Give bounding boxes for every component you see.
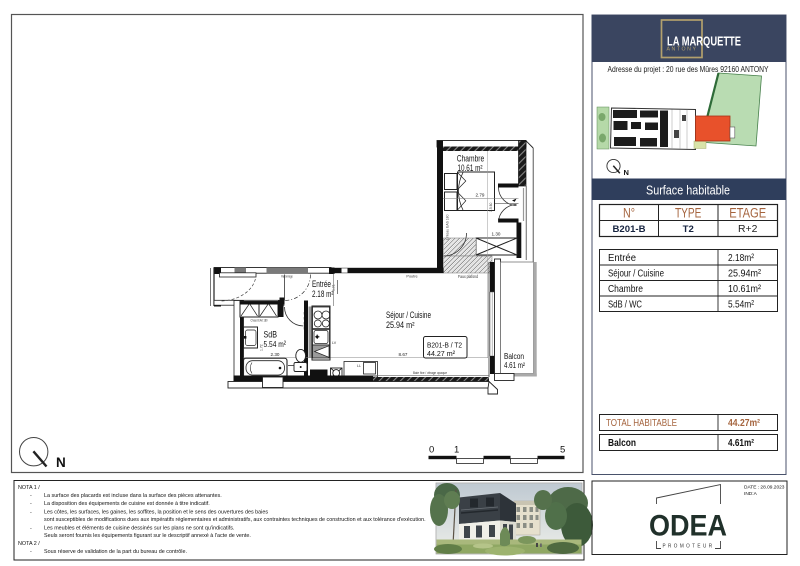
svg-text:0: 0 (429, 445, 434, 456)
svg-text:-: - (30, 549, 32, 555)
svg-text:-: - (30, 510, 32, 516)
svg-text:DATE : 28.09.2023: DATE : 28.09.2023 (744, 485, 785, 491)
svg-text:PROMOTEUR: PROMOTEUR (663, 544, 715, 550)
svg-text:Adresse du projet : 20 rue des: Adresse du projet : 20 rue des Mûres 921… (608, 65, 769, 74)
svg-text:Sous réserve de validation de: Sous réserve de validation de la part du… (44, 549, 187, 555)
svg-text:Chaud EA0 180: Chaud EA0 180 (251, 319, 268, 323)
svg-text:NOTA 2 /: NOTA 2 / (18, 541, 40, 547)
svg-text:Seuls seront fournis les équip: Seuls seront fournis les équipements fig… (44, 533, 251, 539)
svg-text:-: - (30, 501, 32, 507)
svg-text:Faux plafond: Faux plafond (458, 274, 479, 279)
svg-text:N: N (56, 455, 66, 470)
svg-text:Entrée: Entrée (608, 253, 636, 264)
svg-text:5.54 m²: 5.54 m² (264, 339, 287, 349)
svg-text:10.61 m²: 10.61 m² (458, 163, 483, 173)
svg-text:N°: N° (623, 205, 635, 220)
svg-text:Balcon: Balcon (608, 438, 636, 449)
svg-text:SdB: SdB (264, 330, 278, 340)
svg-text:Rayonnage: Rayonnage (281, 275, 293, 279)
svg-text:TOTAL HABITABLE: TOTAL HABITABLE (606, 418, 677, 429)
svg-text:T2: T2 (683, 224, 694, 235)
svg-text:LL: LL (357, 364, 361, 368)
svg-text:1.5 80: 1.5 80 (489, 202, 493, 212)
svg-text:8.67: 8.67 (399, 352, 408, 357)
svg-text:R+2: R+2 (738, 224, 758, 235)
svg-text:Séjour / Cuisine: Séjour / Cuisine (386, 310, 431, 320)
svg-text:5.54m²: 5.54m² (728, 300, 754, 311)
svg-text:La surface des placards est in: La surface des placards est incluse dans… (44, 493, 222, 499)
svg-text:25.94 m²: 25.94 m² (386, 320, 415, 330)
svg-text:1: 1 (454, 445, 459, 456)
svg-text:SdB / WC: SdB / WC (608, 300, 642, 311)
svg-text:Baie fixe / vitrage opaque: Baie fixe / vitrage opaque (413, 371, 447, 375)
svg-text:-: - (30, 493, 32, 499)
svg-text:Les côtes, les surfaces, les g: Les côtes, les surfaces, les gaines, les… (44, 510, 268, 516)
svg-text:N: N (624, 168, 629, 177)
svg-text:2.79: 2.79 (476, 193, 485, 198)
svg-text:-: - (30, 526, 32, 532)
svg-text:B201-B: B201-B (613, 224, 646, 235)
svg-text:2.18 m²: 2.18 m² (312, 289, 334, 299)
svg-text:ETAGE: ETAGE (729, 205, 766, 220)
svg-text:4.61 m²: 4.61 m² (504, 361, 525, 370)
svg-text:1.30: 1.30 (492, 232, 501, 237)
svg-text:Chambre: Chambre (608, 284, 643, 295)
svg-text:1.72: 1.72 (260, 344, 264, 351)
svg-text:10.61m²: 10.61m² (728, 284, 761, 295)
svg-text:2.18m²: 2.18m² (728, 253, 754, 264)
svg-text:Séjour / Cuisine: Séjour / Cuisine (608, 269, 664, 280)
svg-text:2.30: 2.30 (271, 352, 280, 357)
svg-text:Poutre: Poutre (406, 275, 417, 279)
svg-text:sont susceptibles de modificat: sont susceptibles de modifications dues … (44, 517, 426, 523)
svg-text:NOTA 1 /: NOTA 1 / (18, 485, 40, 491)
svg-text:Entrée: Entrée (312, 279, 331, 289)
svg-text:5: 5 (560, 445, 565, 456)
svg-text:44.27 m²: 44.27 m² (427, 349, 455, 358)
svg-text:La disposition des équipements: La disposition des équipements de cuisin… (44, 501, 210, 507)
svg-text:IND:A: IND:A (744, 491, 758, 497)
svg-text:ODEA: ODEA (649, 510, 727, 543)
svg-text:4.61m²: 4.61m² (728, 438, 754, 449)
svg-text:Surface habitable: Surface habitable (646, 183, 730, 198)
svg-text:25.94m²: 25.94m² (728, 269, 761, 280)
svg-text:Linteau EAS 180: Linteau EAS 180 (446, 214, 450, 240)
svg-text:TYPE: TYPE (675, 205, 702, 220)
svg-text:ANTONY: ANTONY (666, 46, 697, 52)
svg-text:44.27m²: 44.27m² (728, 418, 760, 429)
svg-text:LV: LV (332, 341, 337, 345)
svg-text:Balcon: Balcon (504, 352, 524, 361)
svg-text:Les meubles et éléments de cui: Les meubles et éléments de cuisine dessi… (44, 526, 234, 532)
